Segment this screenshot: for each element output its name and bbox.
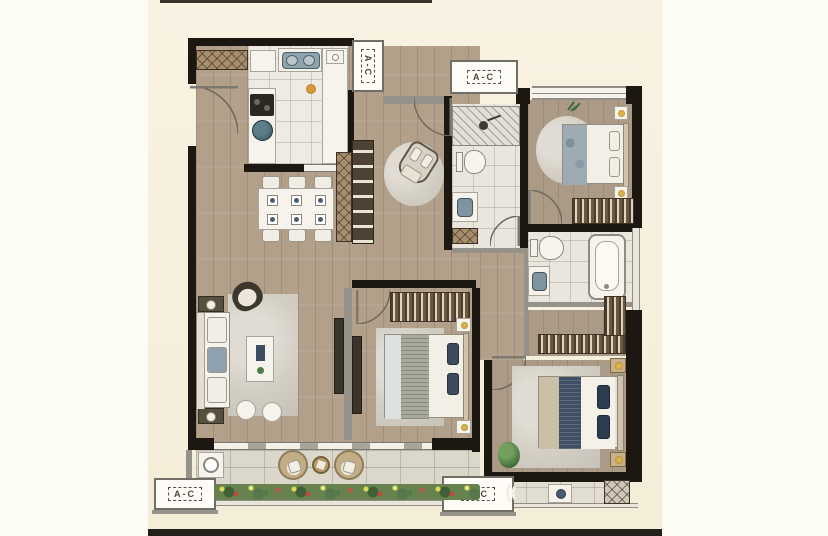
sofa-back (197, 313, 205, 409)
kitchen-counter-right (322, 48, 348, 164)
place-setting (291, 214, 302, 225)
toilet-tank (456, 152, 463, 172)
nightstand (610, 358, 626, 373)
toilet-bowl (464, 150, 486, 174)
entry-door-arc (190, 86, 238, 134)
flower-bed (214, 484, 480, 500)
bathroom-door-arc (490, 216, 520, 246)
dining-chair (288, 229, 306, 242)
kitchen-sink (282, 52, 320, 69)
toilet-bowl (539, 236, 564, 260)
wall-top (188, 38, 354, 46)
bed-pillow (447, 373, 459, 395)
toilet (456, 150, 486, 174)
wall-kitchen-bottom (244, 164, 304, 172)
dining-hatch-cabinet (336, 152, 352, 242)
toilet-tank (530, 239, 538, 257)
walkin-wardrobe (538, 334, 626, 354)
bedroom2-wardrobe (572, 198, 634, 224)
corridor-floor (480, 248, 524, 360)
balcony-tray-table (548, 484, 572, 503)
fridge (250, 50, 276, 72)
master-bed (538, 376, 624, 448)
bed-blanket (401, 335, 429, 419)
nightstand (614, 106, 628, 120)
ac-platform-top-center: A-C (450, 60, 518, 94)
ac-label: A-C (168, 487, 202, 501)
stove (250, 94, 274, 116)
ac-label: A-C (361, 49, 375, 83)
window-plant-sprig (566, 100, 582, 112)
bathtub (588, 234, 626, 300)
ac-label: A-C (467, 70, 501, 84)
cooking-pot (252, 120, 273, 141)
wall-living-bottom-right (432, 438, 480, 450)
wall-bath-right (520, 104, 528, 248)
place-setting (291, 195, 302, 206)
tray-dish (556, 489, 566, 499)
place-setting (315, 195, 326, 206)
nightstand (456, 420, 471, 434)
table-lamp (206, 300, 216, 310)
nightstand (456, 318, 471, 332)
chair-cushion (287, 459, 302, 474)
bed-blanket (559, 377, 581, 449)
potted-plant (498, 442, 520, 468)
tub-drain (604, 284, 609, 289)
bathroom-cabinet (452, 228, 478, 244)
washbasin (457, 198, 473, 217)
pouf (262, 402, 282, 422)
ac-platform-top-left: A-C (352, 40, 384, 92)
table-plant (257, 367, 264, 374)
kitchen-decor-flower (306, 84, 316, 94)
master-balcony-cabinet (604, 480, 630, 504)
shoe-cabinet (196, 50, 248, 70)
place-setting (267, 195, 278, 206)
walkin-wardrobe-corner (604, 296, 626, 336)
ac-platform-base (152, 510, 218, 514)
master-toilet (530, 236, 564, 260)
bed-blanket (563, 125, 587, 185)
shower-area (452, 106, 520, 146)
wall-entry-chunk (516, 88, 530, 104)
place-setting (267, 214, 278, 225)
wall-right-master (626, 310, 642, 478)
pouf (236, 400, 256, 420)
washer-drum (203, 457, 219, 473)
sofa (196, 312, 230, 408)
shower-head-icon (479, 121, 488, 130)
headboard (623, 123, 629, 187)
chair-cushion (342, 460, 357, 475)
master-bath-window (632, 228, 640, 310)
bathroom-vanity (452, 192, 478, 222)
sink-basin (286, 55, 298, 66)
dining-chair (314, 229, 332, 242)
side-table (198, 296, 224, 312)
bed-pillow (597, 415, 610, 439)
kitchen-corner-unit (326, 50, 344, 64)
armchair-seat (235, 286, 260, 310)
bedroom3-door-arc (356, 290, 390, 324)
bed-runner (385, 335, 401, 419)
bookshelf-sideboard (352, 140, 374, 244)
table-top (316, 460, 326, 470)
sink-basin (303, 55, 315, 66)
side-table (198, 408, 224, 424)
headboard (463, 333, 469, 421)
balcony-sliding-door (214, 442, 432, 450)
ac-platform-bottom-left: A-C (154, 478, 216, 510)
photo-edge-bottom (148, 529, 662, 536)
sofa-cushion (207, 317, 227, 343)
photo-edge-top (160, 0, 432, 3)
wall-bedroom2-bath-divider (524, 224, 632, 232)
tv-partition-wall (344, 288, 352, 440)
chair-cushion (419, 153, 434, 170)
bed-pillow (597, 385, 610, 409)
hall-door-arc (414, 98, 452, 136)
master-vanity (528, 266, 550, 296)
washbasin (532, 272, 547, 291)
place-setting (315, 214, 326, 225)
headboard (617, 375, 624, 451)
dining-chair (262, 229, 280, 242)
floor-plan-canvas: A-C A-C A-C A-C (0, 0, 828, 536)
coffee-table (246, 336, 274, 382)
balcony-chair (506, 483, 526, 503)
sofa-cushion (207, 377, 227, 403)
bed-pillow (609, 131, 620, 151)
wall-bedroom3-right (472, 288, 480, 452)
wall-living-bottom-left (188, 438, 214, 450)
bed-pillow (447, 343, 459, 365)
bedroom3-bed (384, 334, 468, 418)
tv-unit-bedroom3 (352, 336, 362, 414)
wall-left-main (188, 146, 196, 444)
bed-pillow (609, 157, 620, 177)
shower-arm (487, 115, 501, 122)
bed-runner (539, 377, 559, 449)
bedroom2-door-arc (528, 190, 562, 224)
wall-bath-bottom (452, 248, 526, 253)
burner (264, 105, 270, 111)
wall-master-left (484, 360, 492, 472)
sofa-cushion (207, 347, 227, 373)
table-decor (256, 345, 265, 361)
table-lamp (206, 412, 216, 422)
nightstand (610, 452, 626, 467)
wall-bedroom3-top (352, 280, 476, 288)
washing-machine (198, 452, 224, 478)
burner (254, 99, 260, 105)
wall-left-upper (188, 38, 196, 84)
dining-table (258, 188, 334, 230)
bedroom2-window (532, 86, 628, 100)
ac-platform-base (440, 512, 516, 516)
tv-unit-living (334, 318, 344, 394)
balcony-table (312, 456, 330, 474)
bedroom2-bed (562, 124, 628, 184)
burner-dot (332, 54, 339, 61)
